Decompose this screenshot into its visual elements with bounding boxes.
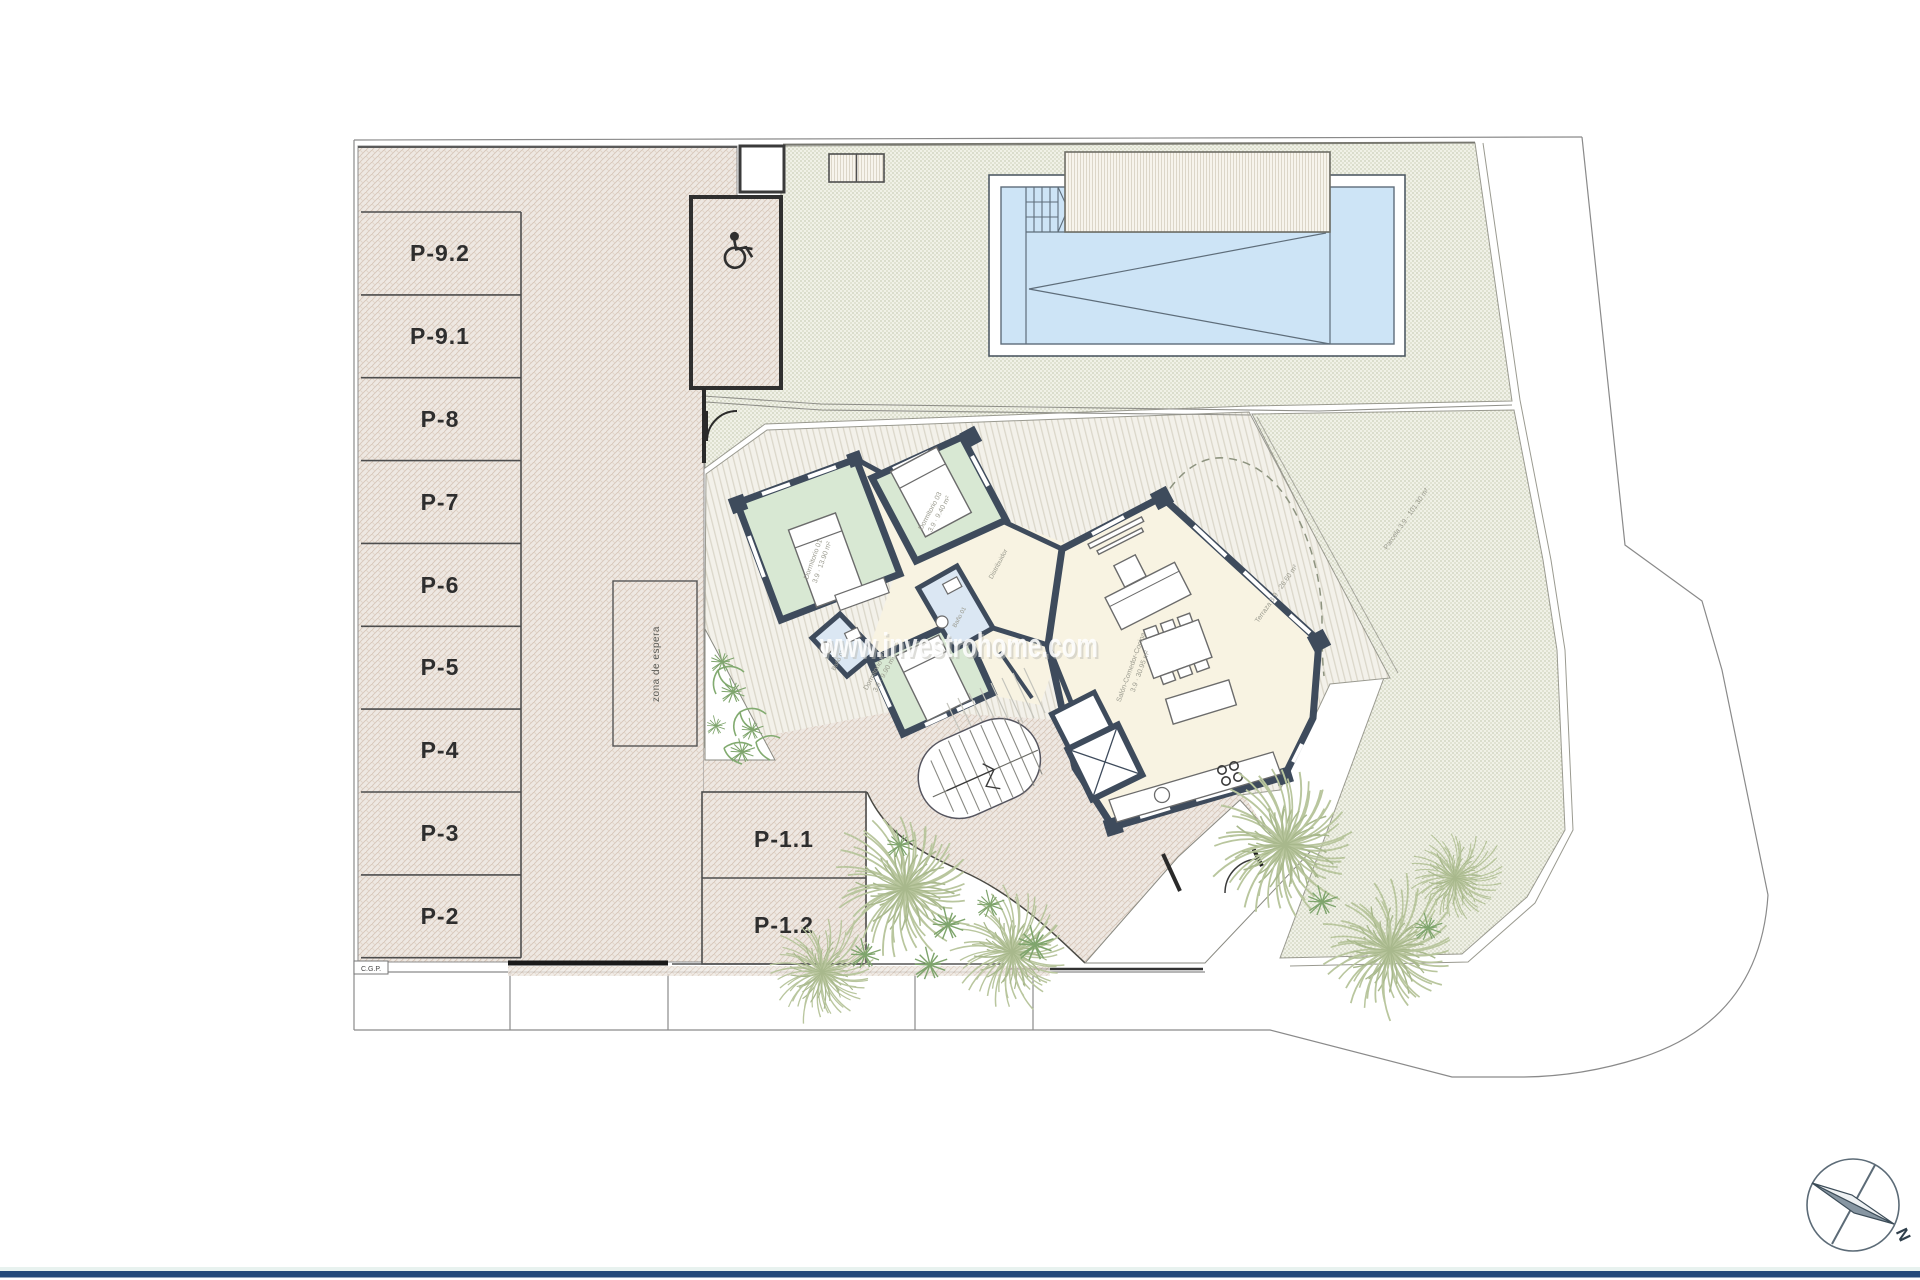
svg-text:P-7: P-7: [421, 489, 460, 515]
svg-text:www.investrohome.com: www.investrohome.com: [819, 627, 1098, 665]
svg-text:P-3: P-3: [421, 820, 460, 846]
svg-text:P-5: P-5: [421, 654, 460, 680]
svg-text:zona de espera: zona de espera: [651, 626, 662, 702]
svg-text:P-1.2: P-1.2: [754, 912, 814, 938]
svg-text:P-8: P-8: [421, 406, 460, 432]
svg-text:P-9.2: P-9.2: [410, 240, 470, 266]
svg-text:P-6: P-6: [421, 572, 460, 598]
svg-text:P-2: P-2: [421, 903, 460, 929]
svg-text:C.G.P.: C.G.P.: [361, 966, 381, 973]
svg-text:P-9.1: P-9.1: [410, 323, 470, 349]
svg-text:P-1.1: P-1.1: [754, 826, 814, 852]
svg-text:P-4: P-4: [421, 737, 460, 763]
